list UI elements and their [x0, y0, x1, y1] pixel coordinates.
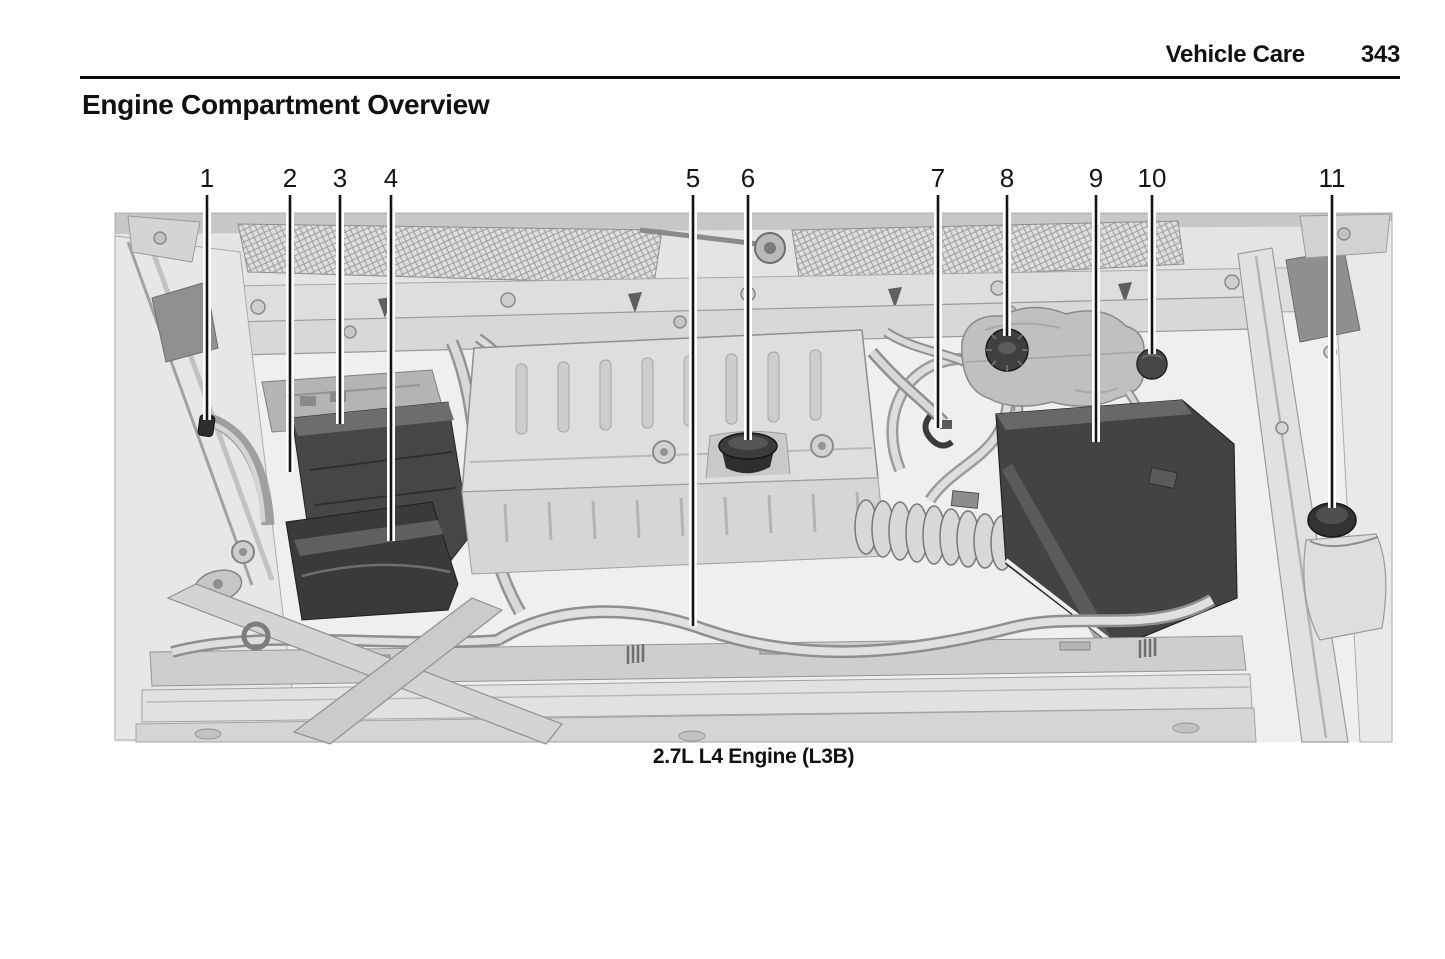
callout-number: 10 — [1138, 163, 1167, 193]
callout-number: 4 — [384, 163, 398, 193]
engine-compartment-figure: 1234567891011 — [0, 0, 1445, 959]
callout-number: 7 — [931, 163, 945, 193]
callout-number: 9 — [1089, 163, 1103, 193]
callout-number: 6 — [741, 163, 755, 193]
callout-number: 2 — [283, 163, 297, 193]
figure-caption: 2.7L L4 Engine (L3B) — [115, 745, 1392, 769]
engine-cover — [462, 330, 878, 492]
callout-number: 5 — [686, 163, 700, 193]
callout-number: 3 — [333, 163, 347, 193]
callout-number: 1 — [200, 163, 214, 193]
fuse-block-cover — [286, 502, 458, 620]
callout-number: 8 — [1000, 163, 1014, 193]
engine-illustration — [115, 213, 1392, 744]
maf-sensor — [951, 491, 978, 509]
callout-number: 11 — [1319, 163, 1346, 193]
